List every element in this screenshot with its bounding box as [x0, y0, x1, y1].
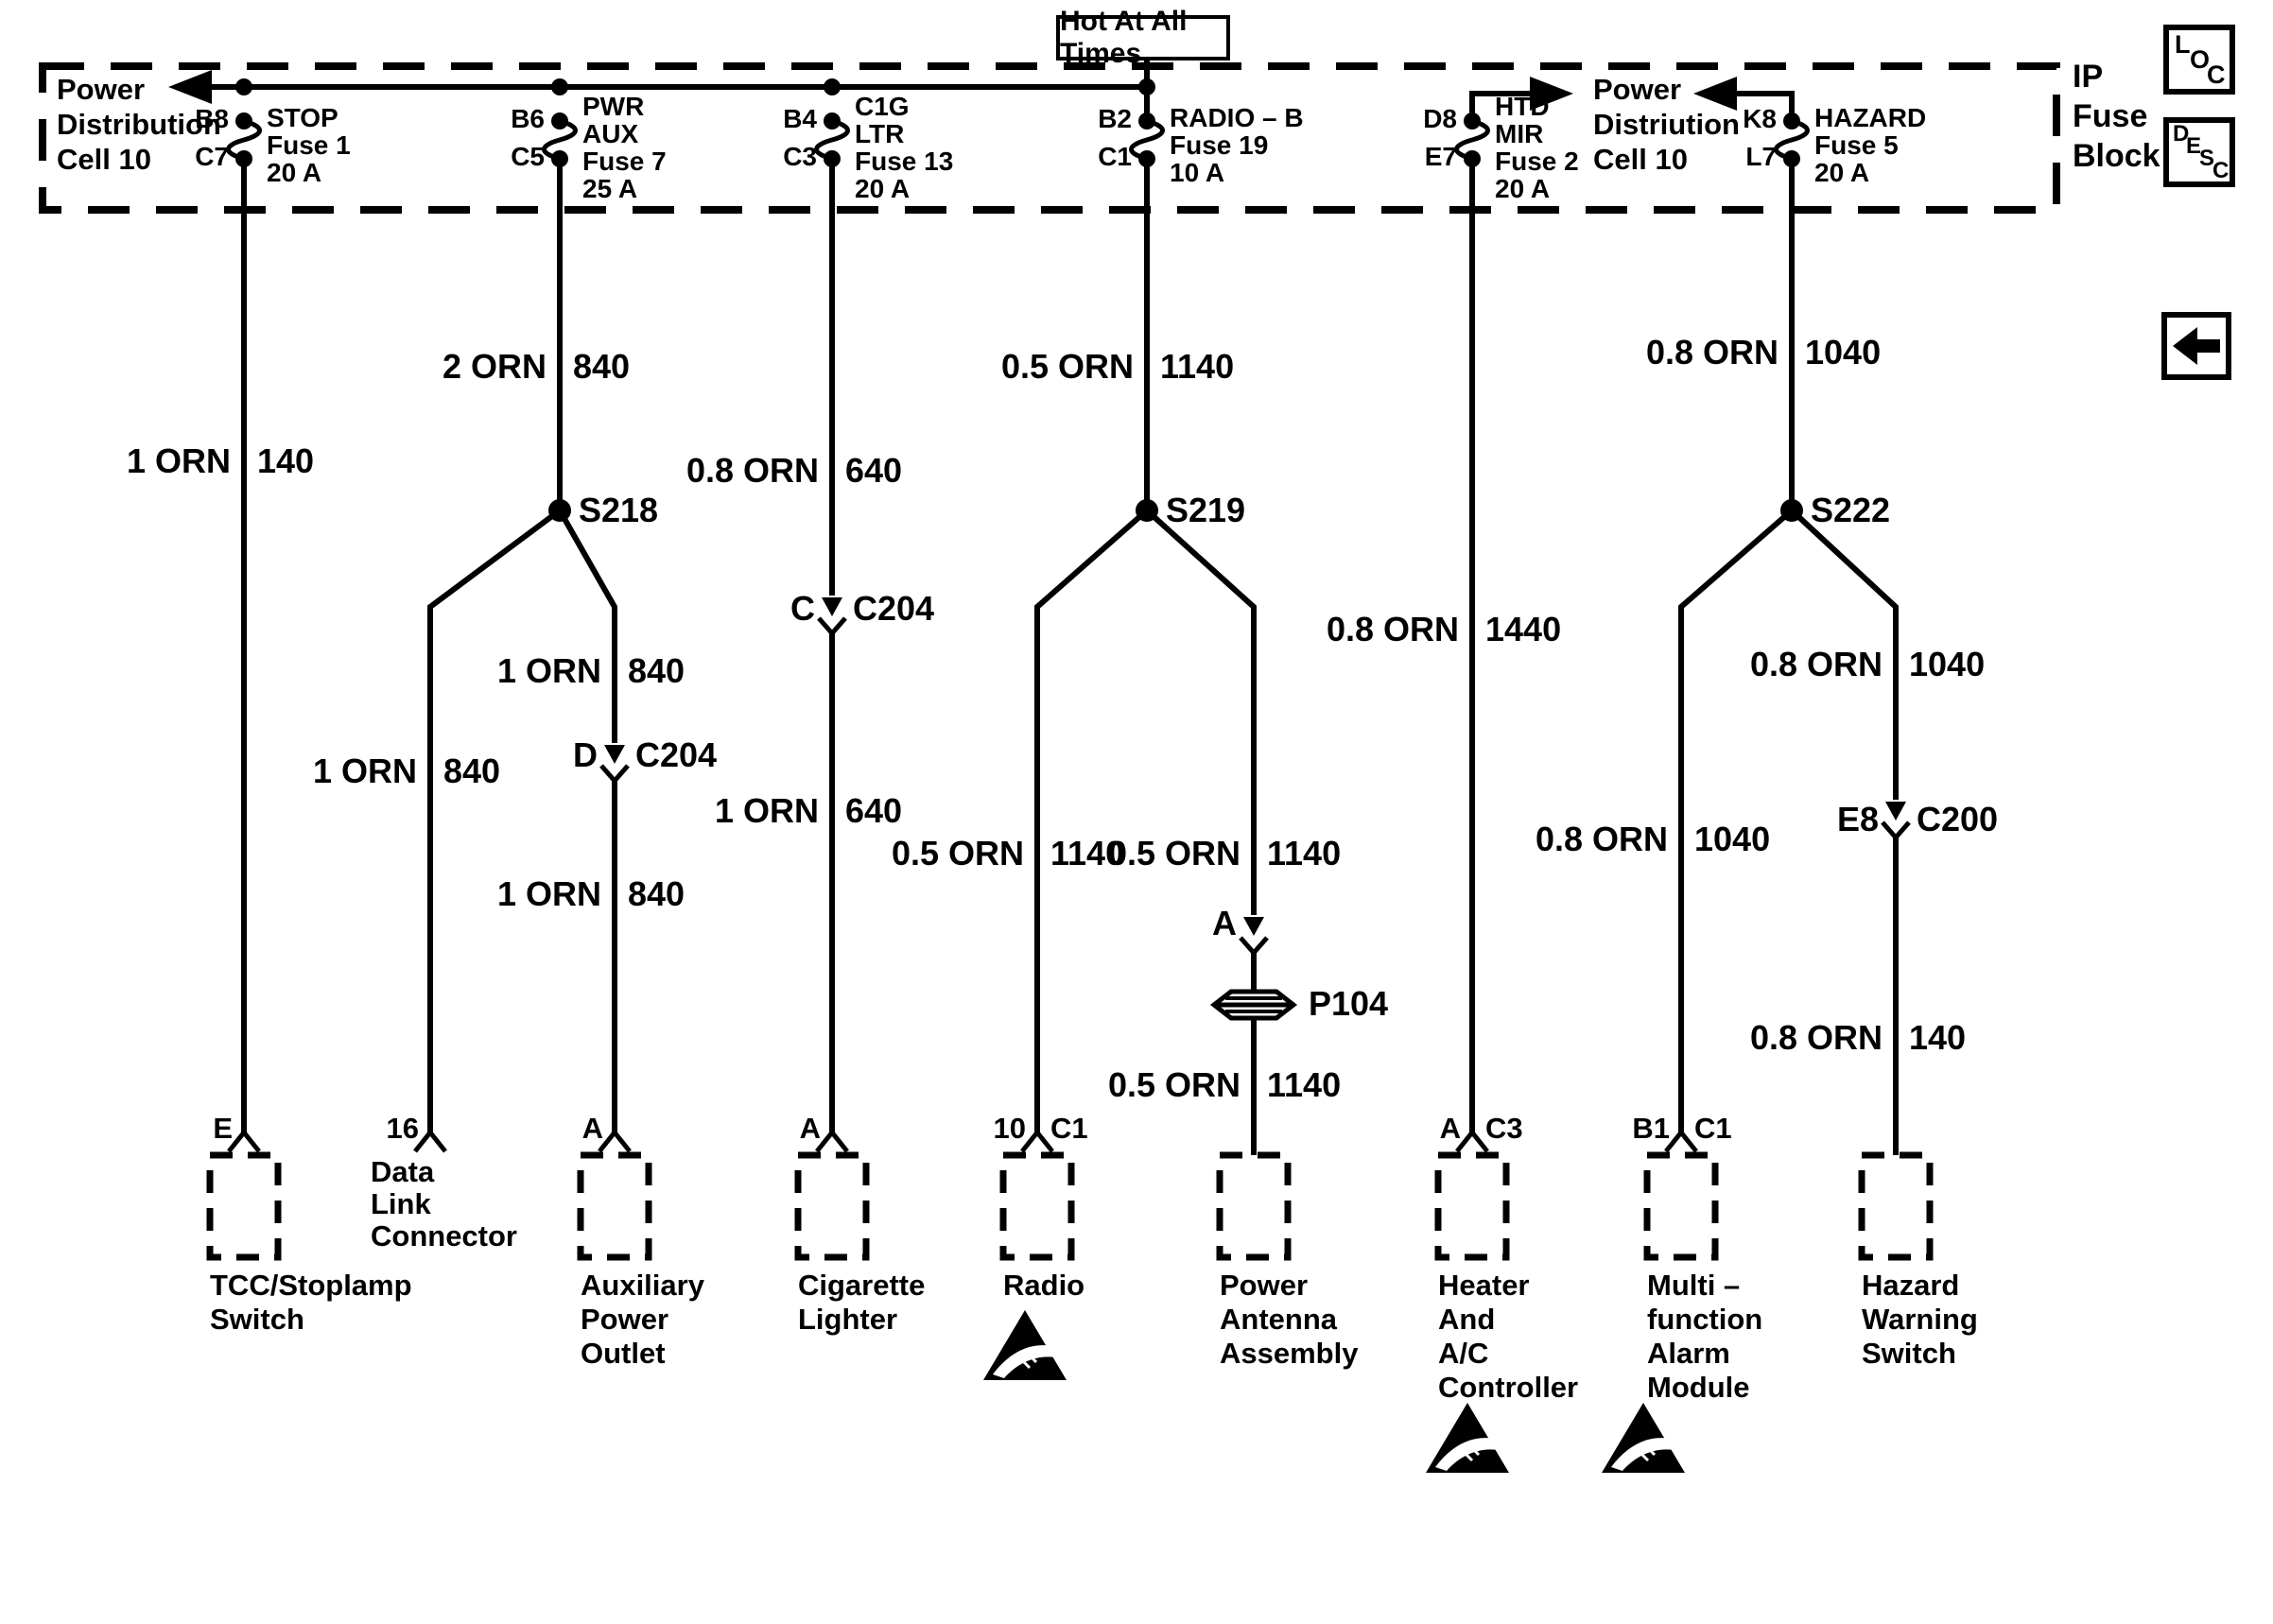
connector-c204-c-icon [819, 597, 845, 633]
wire-label-circuit: 640 [845, 452, 902, 490]
component-antenna-line3: Assembly [1220, 1337, 1358, 1371]
fuse-stop-name: STOP [267, 104, 338, 131]
pin-chevron-multi-icon [1666, 1132, 1696, 1151]
component-multi-line3: Alarm [1647, 1337, 1730, 1371]
wire-label-gauge: 1 ORN [127, 442, 231, 480]
component-multi-line4: Module [1647, 1371, 1750, 1405]
wire-label-circuit: 840 [628, 652, 685, 690]
fuse-cigltr-name2: LTR [855, 120, 904, 147]
component-antenna-line2: Antenna [1220, 1303, 1337, 1337]
connector-antenna-a-icon [1241, 917, 1267, 953]
antenna-box [1220, 1155, 1288, 1257]
splice-s219-label: S219 [1166, 492, 1245, 529]
fuse-pwraux-name1: PWR [582, 93, 644, 120]
desc-letter-c: C [2212, 158, 2229, 184]
fuse-hazard-name: HAZARD [1814, 104, 1926, 131]
wire-label-gauge: 0.8 ORN [1646, 334, 1778, 371]
connector-c200-name: C200 [1917, 801, 1998, 838]
wiring-diagram-page: Hot At All Times Power Distribution Cell… [0, 0, 2273, 1624]
wire-label-circuit: 140 [1909, 1019, 1966, 1057]
component-cig-line2: Lighter [798, 1303, 897, 1337]
left-feed-line1: Power [57, 72, 145, 107]
fuse-radiob-top-pin: B2 [1098, 105, 1132, 132]
connector-c204-d-icon [601, 745, 628, 781]
pwr-aux-fuse-icon [545, 112, 576, 167]
loc-letter-l: L [2175, 30, 2191, 60]
ip-fuse-block-label-line2: Fuse [2073, 96, 2147, 136]
wire-label-gauge: 0.8 ORN [1536, 821, 1668, 858]
component-aux-line1: Auxiliary [581, 1269, 704, 1303]
aux-outlet-box [581, 1155, 649, 1257]
cigarette-lighter-box [798, 1155, 866, 1257]
hot-at-all-times-label: Hot At All Times [1060, 6, 1226, 70]
hazard-fuse-icon [1777, 112, 1808, 167]
wire-label-circuit: 840 [628, 875, 685, 913]
component-hazard-line3: Switch [1862, 1337, 1956, 1371]
ip-fuse-block-label-line1: IP [2073, 57, 2103, 96]
component-multi-line2: function [1647, 1303, 1762, 1337]
fuse-cigltr-bottom-pin: C3 [783, 143, 817, 170]
component-aux-line3: Outlet [581, 1337, 666, 1371]
wire-label-gauge: 0.5 ORN [1108, 835, 1241, 872]
wire-label-gauge: 0.5 ORN [1108, 1066, 1241, 1104]
hazard-feed-arrow-icon [1693, 77, 1737, 111]
tcc-switch-box [210, 1155, 278, 1257]
wire-label-gauge: 1 ORN [313, 752, 417, 790]
multi-alarm-box [1647, 1155, 1715, 1257]
wire-label-circuit: 1040 [1694, 821, 1770, 858]
wire-label-circuit: 1140 [1267, 835, 1341, 872]
wire-label-gauge: 0.8 ORN [1327, 611, 1459, 648]
pin-chevron-dlc-icon [415, 1132, 445, 1151]
fuse-htdmir-top-pin: D8 [1423, 105, 1457, 132]
splice-s222-dot [1780, 499, 1803, 522]
fuse-hazard-rating: 20 A [1814, 159, 1869, 186]
fuse-stop-number: Fuse 1 [267, 131, 351, 159]
left-feed-line3: Cell 10 [57, 142, 151, 177]
pin-chevron-cig-icon [817, 1132, 847, 1151]
fuse-htdmir-name2: MIR [1495, 120, 1543, 147]
pin-multi-left: B1 [1632, 1112, 1670, 1146]
esd-warning-heater-icon [1426, 1403, 1509, 1473]
esd-warning-multi-icon [1602, 1403, 1685, 1473]
fuse-stop-rating: 20 A [267, 159, 321, 186]
splice-s219-dot [1136, 499, 1158, 522]
pin-heater-left: A [1440, 1112, 1461, 1146]
fuse-radiob-rating: 10 A [1170, 159, 1224, 186]
pin-chevron-heater-icon [1457, 1132, 1487, 1151]
pin-heater-right: C3 [1485, 1112, 1523, 1146]
junctions-and-arrows [168, 70, 1803, 522]
fuse-stop-top-pin: B8 [195, 105, 229, 132]
wire-label-gauge: 0.8 ORN [686, 452, 819, 490]
component-multi-line1: Multi – [1647, 1269, 1740, 1303]
connector-c204-c-name: C204 [853, 590, 934, 628]
fuse-radiob-bottom-pin: C1 [1098, 143, 1132, 170]
htd-mir-fuse-icon [1457, 112, 1488, 167]
wire-label-gauge: 0.8 ORN [1750, 1019, 1883, 1057]
fuse-cigltr-top-pin: B4 [783, 105, 817, 132]
wire-orn-1140-radio [1037, 510, 1147, 1132]
fuse-hazard-bottom-pin: L7 [1745, 143, 1777, 170]
p104-label: P104 [1309, 985, 1388, 1023]
heater-ac-box [1438, 1155, 1506, 1257]
wire-label-circuit: 140 [257, 442, 314, 480]
wire-label-gauge: 0.5 ORN [1001, 348, 1134, 386]
fuse-pwraux-rating: 25 A [582, 175, 637, 202]
component-heater-line4: Controller [1438, 1371, 1578, 1405]
component-dlc-line2: Link [371, 1187, 431, 1221]
fuse-cigltr-number: Fuse 13 [855, 147, 953, 175]
component-radio-line1: Radio [1003, 1269, 1084, 1303]
fuse-pwraux-number: Fuse 7 [582, 147, 667, 175]
fuse-cigltr-name1: C1G [855, 93, 910, 120]
fuse-pwraux-top-pin: B6 [511, 105, 545, 132]
component-dlc-line3: Connector [371, 1219, 517, 1253]
fuse-pwraux-bottom-pin: C5 [511, 143, 545, 170]
wire-label-circuit: 840 [443, 752, 500, 790]
esd-warning-radio-icon [983, 1310, 1067, 1380]
wire-label-gauge: 1 ORN [715, 792, 819, 830]
wire-label-gauge: 1 ORN [497, 652, 601, 690]
radio-b-fuse-icon [1132, 112, 1163, 167]
wire-label-gauge: 0.8 ORN [1750, 646, 1883, 683]
splice-s218-label: S218 [579, 492, 658, 529]
fuse-htdmir-name1: HTD [1495, 93, 1550, 120]
wire-label-circuit: 840 [573, 348, 630, 386]
wire-label-gauge: 1 ORN [497, 875, 601, 913]
pin-cig: A [800, 1112, 821, 1146]
wire-label-circuit: 640 [845, 792, 902, 830]
connector-c204-d-name: C204 [635, 736, 717, 774]
fuse-pwraux-name2: AUX [582, 120, 638, 147]
pin-radio-left: 10 [994, 1112, 1026, 1146]
right-feed-line3: Cell 10 [1593, 142, 1688, 177]
fuse-hazard-number: Fuse 5 [1814, 131, 1899, 159]
wires [208, 53, 1896, 1155]
back-arrow-icon [2167, 318, 2226, 374]
component-aux-line2: Power [581, 1303, 668, 1337]
pin-chevron-tcc-icon [229, 1132, 259, 1151]
component-tcc-line1: TCC/Stoplamp [210, 1269, 412, 1303]
wire-orn-840-aux-upper [560, 510, 615, 743]
radio-box [1003, 1155, 1071, 1257]
connector-antenna-pin: A [1212, 905, 1237, 942]
component-heater-line2: And [1438, 1303, 1495, 1337]
fuse-hazard-top-pin: K8 [1743, 105, 1777, 132]
wire-label-circuit: 1440 [1485, 611, 1561, 648]
wire-label-gauge: 0.5 ORN [892, 835, 1024, 872]
hazard-switch-box [1862, 1155, 1930, 1257]
loc-letter-c: C [2207, 60, 2226, 90]
stop-fuse-icon [229, 112, 260, 167]
component-tcc-line2: Switch [210, 1303, 304, 1337]
fuse-htdmir-bottom-pin: E7 [1425, 143, 1457, 170]
component-dlc-line1: Data [371, 1155, 434, 1189]
connector-c204-c-pin: C [790, 590, 815, 628]
connector-c204-d-pin: D [573, 736, 598, 774]
pin-chevron-radio-icon [1022, 1132, 1052, 1151]
wire-label-circuit: 1040 [1805, 334, 1881, 371]
fuse-radiob-name: RADIO – B [1170, 104, 1304, 131]
pin-chevron-aux-icon [599, 1132, 630, 1151]
fuse-radiob-number: Fuse 19 [1170, 131, 1268, 159]
pin-multi-right: C1 [1694, 1112, 1732, 1146]
component-hazard-line1: Hazard [1862, 1269, 1959, 1303]
connector-c200-e8-icon [1883, 802, 1909, 838]
fuse-stop-bottom-pin: C7 [195, 143, 229, 170]
loc-button[interactable]: L O C [2163, 25, 2235, 95]
hot-at-all-times-box: Hot At All Times [1056, 15, 1230, 60]
p104-grommet-icon [1214, 992, 1293, 1018]
wire-label-gauge: 2 ORN [442, 348, 547, 386]
connector-c200-pin: E8 [1837, 801, 1879, 838]
fuse-htdmir-rating: 20 A [1495, 175, 1550, 202]
right-feed-line1: Power [1593, 72, 1681, 107]
wire-label-circuit: 1040 [1909, 646, 1985, 683]
right-feed-line2: Distriution [1593, 107, 1740, 142]
wire-label-circuit: 1140 [1267, 1066, 1341, 1104]
component-heater-line3: A/C [1438, 1337, 1488, 1371]
component-antenna-line1: Power [1220, 1269, 1308, 1303]
cig-ltr-fuse-icon [817, 112, 848, 167]
component-hazard-line2: Warning [1862, 1303, 1978, 1337]
fuse-cigltr-rating: 20 A [855, 175, 910, 202]
component-heater-line1: Heater [1438, 1269, 1530, 1303]
pin-dlc: 16 [387, 1112, 419, 1146]
splice-s222-label: S222 [1811, 492, 1890, 529]
pin-aux: A [582, 1112, 603, 1146]
wire-label-circuit: 1140 [1160, 348, 1234, 386]
back-button[interactable] [2161, 312, 2231, 380]
pin-radio-right: C1 [1050, 1112, 1088, 1146]
splice-s218-dot [548, 499, 571, 522]
fuse-htdmir-number: Fuse 2 [1495, 147, 1579, 175]
component-cig-line1: Cigarette [798, 1269, 925, 1303]
pin-tcc: E [213, 1112, 233, 1146]
ip-fuse-block-label-line3: Block [2073, 136, 2160, 176]
desc-button[interactable]: D E S C [2163, 117, 2235, 187]
wire-orn-840-dlc [430, 510, 560, 1132]
left-feed-arrow-icon [168, 70, 212, 104]
